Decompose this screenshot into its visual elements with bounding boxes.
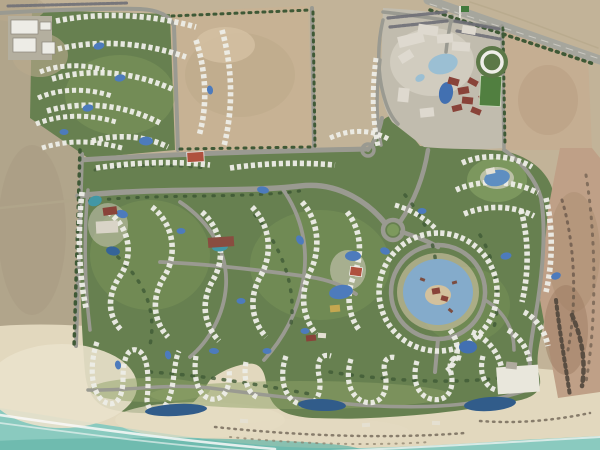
grain-overlay xyxy=(0,0,600,450)
aerial-master-plan-map xyxy=(0,0,600,450)
satellite-image xyxy=(0,0,600,450)
